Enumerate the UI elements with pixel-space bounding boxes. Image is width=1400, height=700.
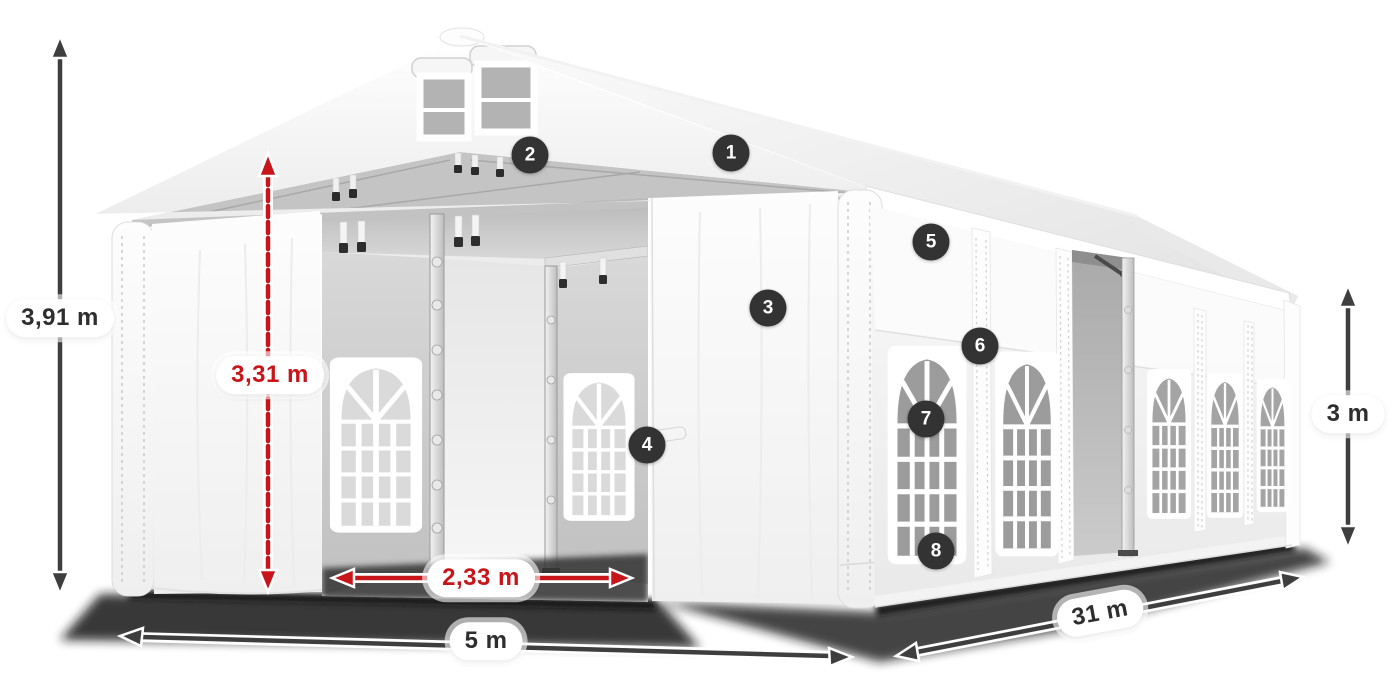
side-window-2 bbox=[995, 352, 1058, 557]
dim-label-width: 5 m bbox=[450, 622, 523, 660]
side-window-4 bbox=[1207, 373, 1243, 518]
tent-dimension-diagram: 3,91 m 3,31 m 2,33 m 5 m 31 m 3 m 1 2 3 … bbox=[0, 0, 1400, 700]
callout-marker-5[interactable]: 5 bbox=[913, 224, 950, 261]
door-frame-pole-inner bbox=[545, 266, 557, 572]
dim-label-entrance-height: 3,31 m bbox=[216, 356, 324, 394]
callout-marker-8[interactable]: 8 bbox=[918, 533, 955, 570]
dim-label-side-height: 3 m bbox=[1312, 395, 1385, 433]
side-seam-strip bbox=[1194, 308, 1206, 532]
front-left-wall bbox=[112, 211, 322, 596]
side-window-3 bbox=[1147, 369, 1191, 519]
side-window-5 bbox=[1257, 379, 1289, 512]
dim-label-total-height: 3,91 m bbox=[6, 299, 114, 337]
side-door-opening bbox=[1072, 250, 1138, 556]
callout-marker-7[interactable]: 7 bbox=[908, 401, 945, 438]
front-opening-interior bbox=[322, 198, 648, 602]
interior-window-left bbox=[330, 357, 422, 532]
callout-marker-2[interactable]: 2 bbox=[512, 137, 549, 174]
front-right-door-panel bbox=[648, 190, 882, 608]
side-window-1 bbox=[888, 346, 967, 565]
tent-illustration bbox=[0, 0, 1400, 700]
callout-marker-3[interactable]: 3 bbox=[750, 290, 787, 327]
pole-base-plate bbox=[1118, 550, 1138, 556]
corner-pole-front-left bbox=[112, 222, 154, 596]
dim-label-entrance-width: 2,33 m bbox=[427, 559, 535, 597]
side-door-pole bbox=[1122, 258, 1134, 556]
interior-window-right bbox=[563, 373, 634, 521]
vent-window-left bbox=[412, 58, 472, 138]
callout-marker-4[interactable]: 4 bbox=[629, 427, 666, 464]
interior-through-view bbox=[432, 258, 545, 572]
callout-marker-1[interactable]: 1 bbox=[713, 135, 750, 172]
side-seam-strip bbox=[1056, 248, 1074, 564]
side-seam-strip bbox=[972, 228, 992, 578]
callout-marker-6[interactable]: 6 bbox=[962, 328, 999, 365]
